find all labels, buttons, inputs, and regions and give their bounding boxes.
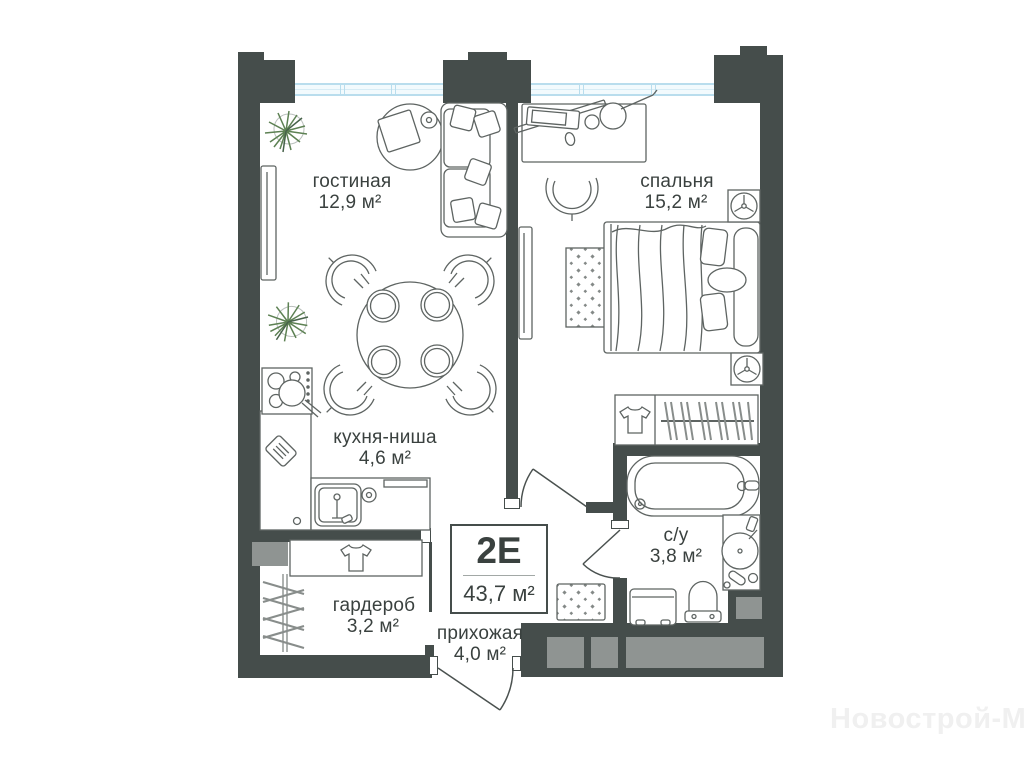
fan-unit-bottom <box>731 353 763 385</box>
stove <box>262 368 321 417</box>
room-area-wardrobe: 3,2 м² <box>347 616 399 638</box>
wall-right <box>760 55 783 677</box>
window-tick <box>651 85 652 94</box>
kitchen-sink <box>294 484 377 526</box>
vanity-sink <box>722 515 760 590</box>
shaft-bottom-2 <box>591 637 618 668</box>
wall-bathroom-vertical-upper <box>613 443 627 522</box>
wall-bottom-left <box>238 655 432 678</box>
window-tick <box>579 85 580 94</box>
bedroom-door <box>521 469 587 507</box>
bench-bedroom <box>566 248 606 327</box>
pillar-top-right <box>714 55 783 103</box>
toilet <box>685 582 721 623</box>
wall-bedroom-hallway <box>586 502 614 513</box>
room-area-living: 12,9 м² <box>318 192 381 214</box>
window-tick <box>655 85 656 94</box>
wall-bedroom-bathroom <box>627 443 762 456</box>
jamb-bathroom-door <box>611 520 629 529</box>
fan-unit-top <box>728 190 760 222</box>
sofa <box>441 103 507 237</box>
bed <box>604 222 760 353</box>
shaft-bottom-1 <box>547 637 584 668</box>
bathroom-door <box>583 530 620 578</box>
window-tick <box>391 85 392 94</box>
cutting-board <box>265 435 298 468</box>
dining-table <box>308 239 511 430</box>
entrance-door <box>438 668 513 710</box>
desk-chair <box>546 178 598 221</box>
room-area-kitchen: 4,6 м² <box>359 448 411 470</box>
wall-center-vertical <box>506 98 518 500</box>
window-tick <box>395 85 396 94</box>
room-label-hallway: прихожая <box>437 623 523 645</box>
unit-total-area: 43,7 м² <box>463 581 534 607</box>
wall-bathroom-vertical-lower <box>613 578 627 625</box>
plant-1 <box>265 111 307 152</box>
wall-left <box>238 55 260 678</box>
bathtub <box>627 456 759 516</box>
clothes-rack-bedroom <box>615 395 758 445</box>
washing-machine <box>630 589 676 625</box>
unit-label: 2Е <box>476 532 521 569</box>
window-living-room <box>295 83 443 96</box>
watermark: Новострой-М <box>830 703 1024 736</box>
wardrobe-shelf <box>290 540 422 576</box>
room-label-bathroom: с/у <box>664 525 689 547</box>
jamb-bedroom-door <box>504 498 520 509</box>
window-tick <box>583 85 584 94</box>
pillar-top-center <box>443 60 531 103</box>
room-label-living: гостиная <box>313 171 392 193</box>
wardrobe-rack <box>263 574 304 652</box>
window-glass-line <box>531 89 714 90</box>
room-area-bedroom: 15,2 м² <box>644 192 707 214</box>
unit-info-box: 2Е 43,7 м² <box>450 524 548 614</box>
window-tick <box>344 85 345 94</box>
tv-living <box>261 166 276 280</box>
plant-2 <box>260 295 315 350</box>
tv-bedroom <box>519 227 532 339</box>
window-tick <box>340 85 341 94</box>
wall-kitchen-wardrobe <box>255 530 422 542</box>
pillar-top-left <box>238 60 295 103</box>
partition-wardrobe <box>429 542 432 612</box>
unit-divider <box>463 575 535 576</box>
shaft-bathroom-corner <box>736 597 762 619</box>
pouf-hallway <box>557 584 605 620</box>
room-label-kitchen: кухня-ниша <box>333 427 437 449</box>
coffee-table <box>377 104 443 170</box>
jamb-entrance-left <box>429 656 438 675</box>
window-glass-line <box>295 89 443 90</box>
room-label-wardrobe: гардероб <box>333 595 415 617</box>
shaft-bottom-3 <box>626 637 764 668</box>
floor-plan: 2Е 43,7 м² гостиная 12,9 м² спальня 15,2… <box>0 0 1024 768</box>
shaft-wardrobe <box>252 542 288 566</box>
window-bedroom <box>531 83 714 96</box>
jamb-kitchen-wall <box>420 528 431 543</box>
room-area-bathroom: 3,8 м² <box>650 546 702 568</box>
room-label-bedroom: спальня <box>640 171 714 193</box>
desk <box>514 90 657 162</box>
jamb-entrance-right <box>512 656 521 671</box>
room-area-hallway: 4,0 м² <box>454 644 506 666</box>
